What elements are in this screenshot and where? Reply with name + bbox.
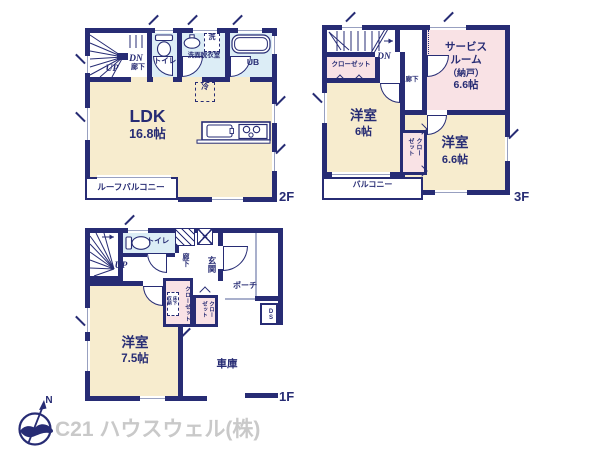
- hallway-label: 廊下: [179, 250, 189, 270]
- ldk-label: LDK: [110, 107, 185, 127]
- closet-middle-label: クローゼット: [406, 136, 422, 158]
- service-room-size-label: 6.6帖: [435, 80, 497, 92]
- entrance-label: 玄関: [204, 252, 216, 276]
- window: [272, 104, 277, 123]
- wall: [505, 25, 510, 195]
- bathtub-icon: [231, 34, 271, 54]
- vent-tick-icon: [187, 15, 197, 25]
- window: [85, 341, 90, 371]
- floor-plan-3f: DN クローゼット 廊下 サービス ルーム （納戸） 6.6帖 洋室 6帖 洋室…: [322, 25, 510, 200]
- wall: [245, 393, 278, 398]
- toilet-label: トイレ: [148, 57, 182, 65]
- floorplan-page: 洗 冷 UP DN 廊下 トイレ 洗面脱衣室 UB LDK 16.8帖 ルーフバ…: [0, 0, 600, 450]
- entrance-door-swing-icon: [223, 246, 248, 271]
- window: [155, 28, 173, 33]
- west-room-size-label: 6帖: [327, 126, 400, 138]
- wall: [218, 233, 223, 246]
- vent-tick-icon: [232, 15, 242, 25]
- hallway-3f: [405, 30, 422, 110]
- closet-b-label: クローゼット: [197, 299, 214, 319]
- wall: [250, 77, 272, 82]
- stairs-down-label: DN: [372, 52, 396, 63]
- window: [128, 228, 148, 233]
- compass-north-label: N: [42, 395, 56, 406]
- wall: [322, 78, 380, 83]
- ldk-size-label: 16.8帖: [110, 127, 185, 141]
- hallway-label: 廊下: [400, 76, 424, 83]
- window: [85, 108, 90, 140]
- wall: [85, 77, 131, 82]
- fridge-label: 冷: [195, 83, 215, 91]
- wall: [167, 253, 175, 257]
- floor-label-3f: 3F: [514, 189, 529, 204]
- service-room-label: サービス: [435, 42, 497, 54]
- unit-bath-label: UB: [239, 58, 267, 68]
- washroom-label: 洗面脱衣室: [180, 52, 228, 59]
- wall: [173, 77, 182, 82]
- wall: [447, 110, 505, 115]
- service-room-label3: （納戸）: [435, 68, 497, 78]
- window: [505, 137, 510, 161]
- sink-icon: [183, 34, 201, 49]
- vent-tick-icon: [148, 15, 158, 25]
- wall: [278, 228, 283, 325]
- vent-tick-icon: [345, 12, 355, 22]
- window: [212, 197, 243, 202]
- porch-label: ポーチ: [227, 282, 263, 291]
- floor-plan-2f: 洗 冷 UP DN 廊下 トイレ 洗面脱衣室 UB LDK 16.8帖 ルーフバ…: [85, 28, 277, 202]
- balcony-label: バルコニー: [332, 181, 413, 190]
- window: [272, 152, 277, 171]
- floor-plan-1f: 床下収納 UP トイレ 廊下 玄関 ポーチ クローゼット クローゼット DS 洋…: [85, 228, 283, 405]
- vent-tick-icon: [124, 215, 134, 225]
- kitchen-counter-icon: [195, 120, 272, 146]
- west-room-label: 洋室: [91, 335, 179, 350]
- vent-tick-icon: [443, 12, 453, 22]
- window: [238, 28, 262, 33]
- east-room-label: 洋室: [415, 135, 495, 150]
- wall: [322, 52, 375, 57]
- toilet-icon: [154, 34, 174, 58]
- window: [85, 308, 90, 332]
- wall: [147, 77, 153, 82]
- closet-label: クローゼット: [327, 61, 375, 68]
- window: [430, 25, 466, 30]
- wall: [85, 281, 143, 286]
- hatch-area: [175, 228, 195, 246]
- underfloor-storage-label: 床下収納: [168, 294, 178, 307]
- window: [272, 36, 277, 54]
- sliding-window: [332, 172, 390, 177]
- duct-space-label: DS: [264, 306, 274, 323]
- dotted-line: [428, 30, 429, 56]
- stairs-up-label: UP: [109, 261, 133, 272]
- door-swing-icon: [147, 253, 167, 273]
- porch-step-line: [225, 298, 255, 300]
- west-room-label: 洋室: [327, 108, 400, 123]
- window: [435, 190, 467, 195]
- roof-balcony-label: ルーフバルコニー: [87, 183, 175, 193]
- sliding-window: [97, 175, 171, 180]
- wall: [118, 233, 123, 281]
- wall: [123, 253, 147, 257]
- company-watermark: C21 ハウスウェル(株): [55, 413, 260, 443]
- wall: [395, 30, 400, 52]
- shaft-box: [197, 228, 213, 245]
- washer-label: 洗: [204, 34, 220, 42]
- stairs-up-label: UP: [99, 64, 125, 75]
- floor-label-1f: 1F: [279, 389, 294, 404]
- east-room-size-label: 6.6帖: [415, 154, 495, 166]
- toilet-label: トイレ: [139, 237, 177, 245]
- closet-a-label: クローゼット: [181, 283, 190, 325]
- window: [140, 396, 165, 401]
- garage-label: 車庫: [203, 359, 251, 371]
- floor-label-2f: 2F: [279, 189, 294, 204]
- wall: [255, 296, 283, 301]
- service-room-label2: ルーム: [435, 55, 497, 67]
- west-room-size-label: 7.5帖: [91, 353, 179, 366]
- stairs-icon-3f: [327, 30, 395, 52]
